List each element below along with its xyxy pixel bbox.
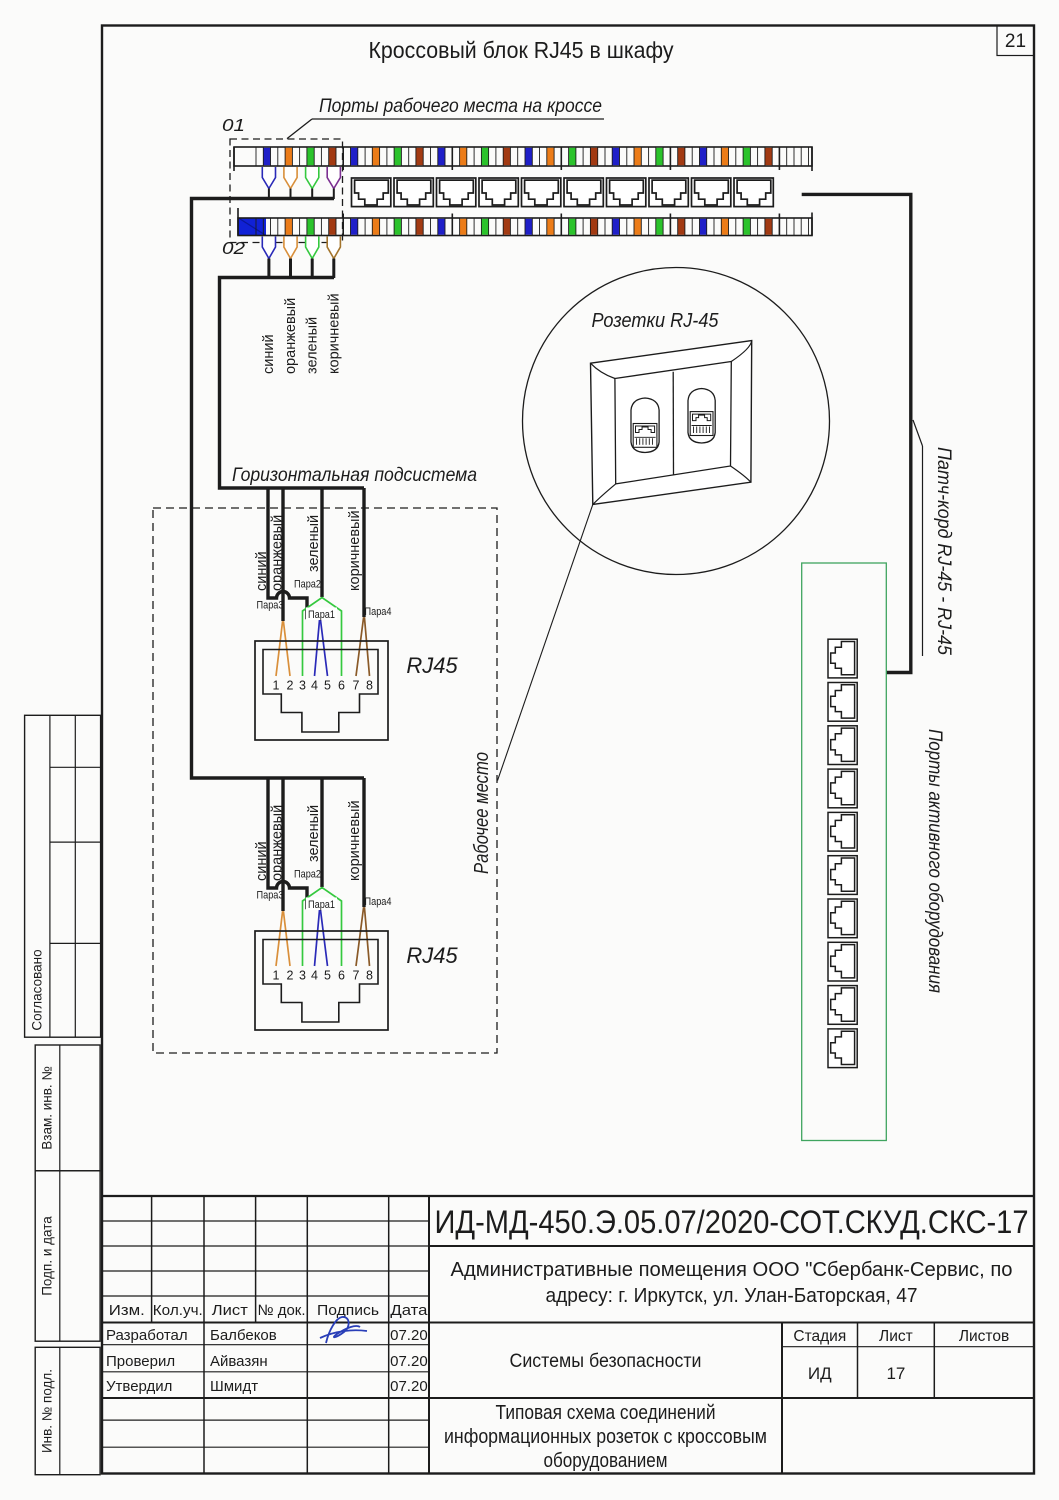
svg-text:Пара1: Пара1: [308, 899, 335, 911]
svg-text:Типовая схема соединений: Типовая схема соединений: [496, 1402, 716, 1424]
svg-text:Разработал: Разработал: [106, 1327, 188, 1344]
svg-text:Согласовано: Согласовано: [30, 949, 45, 1030]
svg-text:зеленый: зеленый: [306, 515, 322, 572]
svg-text:Порты активного оборудования: Порты активного оборудования: [924, 729, 945, 993]
svg-text:5: 5: [324, 969, 331, 983]
svg-text:7: 7: [353, 969, 360, 983]
svg-text:07.20: 07.20: [390, 1353, 428, 1370]
svg-text:Пара4: Пара4: [365, 896, 392, 908]
svg-text:Балбеков: Балбеков: [210, 1327, 277, 1344]
svg-text:RJ45: RJ45: [406, 943, 458, 968]
svg-text:Листов: Листов: [959, 1328, 1009, 1345]
svg-text:Проверил: Проверил: [106, 1353, 175, 1370]
svg-text:Рабочее место: Рабочее место: [471, 752, 493, 874]
svg-text:Патч-корд RJ-45 - RJ-45: Патч-корд RJ-45 - RJ-45: [933, 447, 954, 655]
svg-text:Пара4: Пара4: [365, 606, 392, 618]
svg-text:Айвазян: Айвазян: [210, 1353, 268, 1370]
svg-text:01: 01: [222, 115, 245, 135]
svg-text:02: 02: [222, 238, 245, 258]
svg-text:оранжевый: оранжевый: [269, 805, 285, 881]
svg-text:Стадия: Стадия: [793, 1328, 846, 1345]
svg-text:07.20: 07.20: [390, 1327, 428, 1344]
svg-text:коричневый: коричневый: [347, 510, 363, 591]
svg-text:4: 4: [311, 679, 318, 693]
svg-text:ИД: ИД: [808, 1364, 832, 1383]
svg-text:оборудованием: оборудованием: [544, 1450, 668, 1472]
svg-text:Пара1: Пара1: [308, 609, 335, 621]
svg-text:Лист: Лист: [212, 1302, 248, 1319]
svg-text:Розетки RJ-45: Розетки RJ-45: [592, 310, 720, 332]
svg-text:7: 7: [353, 679, 360, 693]
svg-text:Системы безопасности: Системы безопасности: [510, 1351, 702, 1372]
svg-text:оранжевый: оранжевый: [283, 298, 299, 374]
svg-text:4: 4: [311, 969, 318, 983]
svg-text:Дата: Дата: [390, 1302, 428, 1319]
svg-text:Лист: Лист: [879, 1328, 913, 1345]
svg-text:Подп. и дата: Подп. и дата: [40, 1216, 55, 1296]
svg-text:21: 21: [1005, 31, 1026, 52]
svg-text:07.20: 07.20: [390, 1378, 428, 1395]
svg-text:Кроссовый блок RJ45 в шкафу: Кроссовый блок RJ45 в шкафу: [369, 37, 674, 63]
svg-text:8: 8: [366, 679, 373, 693]
svg-text:3: 3: [299, 679, 306, 693]
svg-text:Пара2: Пара2: [294, 579, 321, 591]
svg-text:зеленый: зеленый: [304, 317, 320, 374]
svg-text:17: 17: [886, 1364, 905, 1383]
svg-text:коричневый: коричневый: [326, 293, 342, 374]
svg-text:Пара2: Пара2: [294, 869, 321, 881]
svg-text:2: 2: [287, 969, 294, 983]
svg-text:Пара3: Пара3: [257, 890, 284, 902]
svg-text:ИД-МД-450.Э.05.07/2020-СОТ.СКУ: ИД-МД-450.Э.05.07/2020-СОТ.СКУД.СКС-17: [435, 1204, 1029, 1240]
svg-text:Инв. № подл.: Инв. № подл.: [40, 1369, 55, 1453]
svg-text:синий: синий: [254, 551, 270, 591]
svg-text:6: 6: [338, 679, 345, 693]
svg-text:Шмидт: Шмидт: [210, 1378, 258, 1395]
svg-text:8: 8: [366, 969, 373, 983]
svg-text:№ док.: № док.: [258, 1302, 306, 1319]
svg-text:адресу: г. Иркутск, ул. Улан-Б: адресу: г. Иркутск, ул. Улан-Баторская, …: [546, 1285, 918, 1307]
svg-text:Кол.уч.: Кол.уч.: [153, 1302, 203, 1319]
svg-text:1: 1: [273, 969, 280, 983]
svg-text:информационных розеток с кросс: информационных розеток с кроссовым: [444, 1426, 767, 1448]
svg-text:Горизонтальная подсистема: Горизонтальная подсистема: [232, 464, 477, 486]
svg-text:Изм.: Изм.: [109, 1302, 145, 1319]
svg-text:Утвердил: Утвердил: [106, 1378, 172, 1395]
svg-text:Взам. инв. №: Взам. инв. №: [40, 1066, 55, 1150]
svg-text:зеленый: зеленый: [306, 805, 322, 862]
svg-text:3: 3: [299, 969, 306, 983]
svg-text:5: 5: [324, 679, 331, 693]
svg-text:RJ45: RJ45: [406, 653, 458, 678]
svg-text:Порты рабочего места на кроссе: Порты рабочего места на кроссе: [319, 95, 602, 117]
svg-text:синий: синий: [261, 334, 277, 374]
svg-text:2: 2: [287, 679, 294, 693]
svg-text:синий: синий: [254, 841, 270, 881]
svg-text:1: 1: [273, 679, 280, 693]
svg-text:коричневый: коричневый: [347, 800, 363, 881]
svg-text:Пара3: Пара3: [257, 600, 284, 612]
svg-text:6: 6: [338, 969, 345, 983]
svg-text:оранжевый: оранжевый: [269, 515, 285, 591]
svg-text:Подпись: Подпись: [317, 1302, 379, 1319]
svg-text:Административные помещения ООО: Административные помещения ООО "Сбербанк…: [451, 1259, 1013, 1281]
